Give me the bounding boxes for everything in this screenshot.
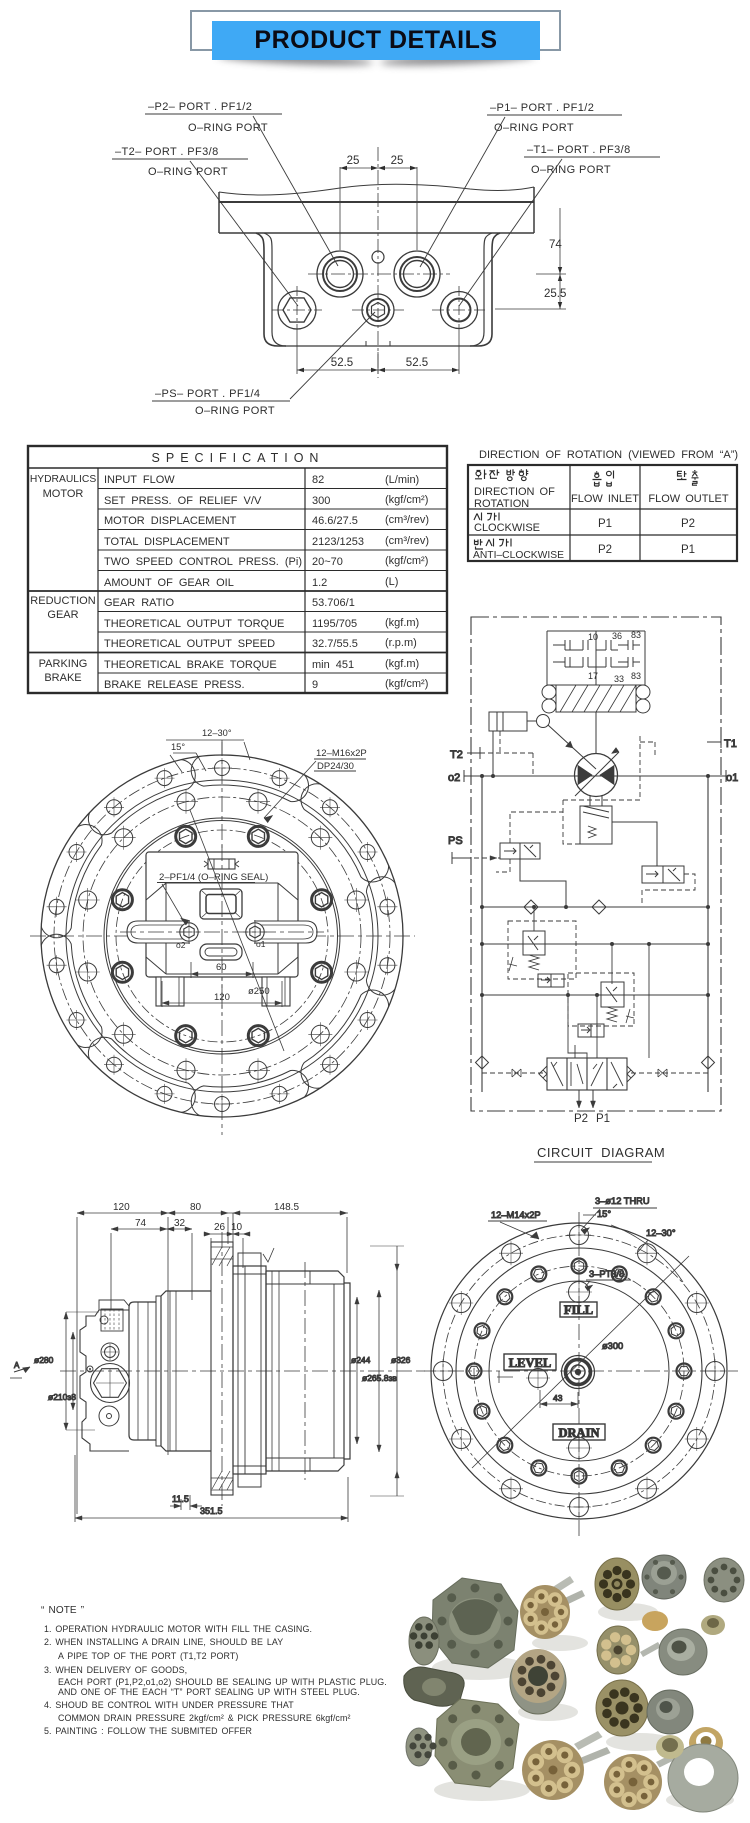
svg-text:FLOW INLET: FLOW INLET	[571, 493, 639, 505]
svg-text:1195/705: 1195/705	[312, 618, 357, 630]
svg-text:ANTI–CLOCKWISE: ANTI–CLOCKWISE	[473, 550, 564, 561]
svg-text:ø244: ø244	[351, 1355, 371, 1365]
svg-text:“ NOTE ”: “ NOTE ”	[41, 1605, 84, 1616]
svg-text:351.5: 351.5	[200, 1506, 223, 1516]
svg-text:P2: P2	[574, 1113, 588, 1125]
svg-text:74: 74	[549, 239, 562, 251]
svg-text:1. OPERATION HYDRAULIC MOTO: 1. OPERATION HYDRAULIC MOTOR WITH FILL T…	[44, 1624, 312, 1634]
svg-text:TOTAL DISPLACEMENT: TOTAL DISPLACEMENT	[104, 536, 230, 548]
svg-text:25: 25	[347, 155, 360, 167]
svg-text:148.5: 148.5	[274, 1202, 299, 1213]
svg-text:32: 32	[174, 1218, 186, 1229]
svg-text:83: 83	[631, 671, 641, 681]
svg-text:AMOUNT OF GEAR OIL: AMOUNT OF GEAR OIL	[104, 577, 234, 589]
svg-text:O–RING PORT: O–RING PORT	[195, 405, 275, 417]
svg-text:(kgf.m): (kgf.m)	[385, 617, 419, 629]
svg-text:P1: P1	[596, 1113, 610, 1125]
svg-text:(L/min): (L/min)	[385, 474, 419, 486]
svg-text:2123/1253: 2123/1253	[312, 536, 364, 548]
svg-text:THEORETICAL BRAKE TORQUE: THEORETICAL BRAKE TORQUE	[104, 659, 277, 671]
svg-text:P1: P1	[681, 544, 695, 556]
svg-text:(kgf/cm²): (kgf/cm²)	[385, 555, 428, 567]
svg-text:5. PAINTING : FOLLOW THE: 5. PAINTING : FOLLOW THE SUBMITED OFFER	[44, 1726, 252, 1736]
svg-text:82: 82	[312, 474, 324, 486]
svg-text:53.706/1: 53.706/1	[312, 597, 355, 609]
svg-text:(kgf.m): (kgf.m)	[385, 658, 419, 670]
svg-text:12–M16x2P: 12–M16x2P	[316, 748, 367, 759]
svg-text:3. WHEN DELIVERY OF GOODS,: 3. WHEN DELIVERY OF GOODS,	[44, 1665, 187, 1675]
svg-text:2. WHEN INSTALLING A DRAIN: 2. WHEN INSTALLING A DRAIN LINE, SHOULD …	[44, 1637, 283, 1647]
svg-text:20~70: 20~70	[312, 556, 343, 568]
svg-text:TWO SPEED CONTROL PRESS. (Pi): TWO SPEED CONTROL PRESS. (Pi)	[104, 556, 302, 568]
svg-text:o2: o2	[176, 940, 186, 950]
svg-text:LEVEL: LEVEL	[509, 1356, 551, 1370]
svg-text:ø210з8: ø210з8	[48, 1392, 76, 1402]
svg-text:ø280: ø280	[34, 1355, 54, 1365]
svg-text:THEORETICAL OUTPUT TORQUE: THEORETICAL OUTPUT TORQUE	[104, 618, 284, 630]
svg-text:o2: o2	[448, 772, 460, 784]
svg-text:EACH PORT (P1,P2,o1,o2) SHO: EACH PORT (P1,P2,o1,o2) SHOULD BE SEALIN…	[58, 1677, 387, 1687]
svg-text:46.6/27.5: 46.6/27.5	[312, 515, 358, 527]
svg-text:(cm³/rev): (cm³/rev)	[385, 535, 429, 547]
svg-text:17: 17	[588, 671, 598, 681]
svg-text:11.5: 11.5	[172, 1494, 189, 1504]
svg-text:BRAKE RELEASE PRESS.: BRAKE RELEASE PRESS.	[104, 679, 245, 691]
svg-text:MOTOR: MOTOR	[43, 488, 84, 500]
svg-text:(kgf/cm²): (kgf/cm²)	[385, 494, 428, 506]
svg-text:25: 25	[391, 155, 404, 167]
svg-text:A PIPE TOP OF THE PORT (: A PIPE TOP OF THE PORT (T1,T2 PORT)	[58, 1651, 238, 1661]
svg-text:T2: T2	[450, 749, 463, 761]
svg-text:ø250: ø250	[248, 986, 270, 997]
svg-text:INPUT FLOW: INPUT FLOW	[104, 474, 175, 486]
svg-text:12–30°: 12–30°	[202, 728, 232, 738]
svg-text:ø326: ø326	[391, 1355, 411, 1365]
svg-text:(r.p.m): (r.p.m)	[385, 637, 417, 649]
svg-text:80: 80	[190, 1202, 202, 1213]
svg-text:DIRECTION OF ROTATION (VIEWED: DIRECTION OF ROTATION (VIEWED FROM “A”)	[479, 449, 738, 461]
svg-text:12–M14x2P: 12–M14x2P	[491, 1210, 541, 1220]
svg-text:CIRCUIT DIAGRAM: CIRCUIT DIAGRAM	[537, 1145, 665, 1160]
svg-text:AND ONE OF THE EACH “T”: AND ONE OF THE EACH “T” PORT SEALING UP …	[58, 1687, 360, 1697]
svg-text:FILL: FILL	[564, 1303, 593, 1317]
svg-text:52.5: 52.5	[331, 357, 353, 369]
svg-text:o1: o1	[726, 772, 738, 784]
svg-text:32.7/55.5: 32.7/55.5	[312, 638, 358, 650]
svg-text:CLOCKWISE: CLOCKWISE	[474, 522, 540, 534]
svg-text:(L): (L)	[385, 576, 398, 588]
svg-text:52.5: 52.5	[406, 357, 428, 369]
svg-text:12–30°: 12–30°	[646, 1228, 676, 1238]
svg-text:MOTOR DISPLACEMENT: MOTOR DISPLACEMENT	[104, 515, 237, 527]
svg-text:10: 10	[231, 1222, 243, 1233]
svg-text:–T1– PORT . PF3/8: –T1– PORT . PF3/8	[527, 144, 631, 156]
svg-text:60: 60	[216, 962, 227, 973]
svg-text:REDUCTION: REDUCTION	[30, 595, 95, 607]
svg-text:O–RING PORT: O–RING PORT	[494, 122, 574, 134]
svg-text:33: 33	[614, 674, 624, 684]
svg-text:–P1– PORT . PF1/2: –P1– PORT . PF1/2	[490, 102, 594, 114]
svg-text:min 451: min 451	[312, 659, 354, 671]
svg-text:FLOW OUTLET: FLOW OUTLET	[648, 493, 729, 505]
svg-text:GEAR: GEAR	[47, 609, 78, 621]
svg-text:BRAKE: BRAKE	[44, 672, 81, 684]
svg-text:COMMON DRAIN PRESSURE 2kgf/: COMMON DRAIN PRESSURE 2kgf/cm² & PICK PR…	[58, 1713, 351, 1723]
svg-text:P2: P2	[598, 544, 612, 556]
svg-text:2–PF1/4 (O–RING SEAL): 2–PF1/4 (O–RING SEAL)	[159, 872, 268, 883]
svg-text:DP24/30: DP24/30	[317, 761, 354, 772]
svg-text:SET PRESS. OF RELIEF V/V: SET PRESS. OF RELIEF V/V	[104, 495, 262, 507]
svg-text:43: 43	[553, 1393, 563, 1403]
svg-text:9: 9	[312, 679, 318, 691]
svg-text:120: 120	[113, 1202, 130, 1213]
svg-text:T1: T1	[724, 738, 737, 750]
svg-text:HYDRAULICS: HYDRAULICS	[30, 474, 97, 485]
svg-text:10: 10	[588, 632, 598, 642]
svg-text:PARKING: PARKING	[39, 658, 88, 670]
svg-text:3–ø12 THRU: 3–ø12 THRU	[595, 1196, 650, 1206]
svg-text:O–RING PORT: O–RING PORT	[148, 166, 228, 178]
svg-text:(cm³/rev): (cm³/rev)	[385, 514, 429, 526]
svg-text:SPECIFICATION: SPECIFICATION	[152, 451, 325, 465]
svg-text:P1: P1	[598, 518, 612, 530]
svg-text:–T2– PORT . PF3/8: –T2– PORT . PF3/8	[115, 146, 219, 158]
svg-text:O–RING PORT: O–RING PORT	[188, 122, 268, 134]
svg-text:4. SHOUD BE CONTROL WITH: 4. SHOUD BE CONTROL WITH UNDER PRESSURE …	[44, 1700, 294, 1710]
svg-text:1.2: 1.2	[312, 577, 327, 589]
svg-text:74: 74	[135, 1218, 147, 1229]
svg-text:P2: P2	[681, 518, 695, 530]
svg-text:15°: 15°	[597, 1209, 611, 1219]
svg-text:–P2– PORT . PF1/2: –P2– PORT . PF1/2	[148, 101, 252, 113]
svg-text:–PS– PORT . PF1/4: –PS– PORT . PF1/4	[155, 388, 260, 400]
svg-text:3–PT3/8: 3–PT3/8	[589, 1269, 624, 1279]
svg-text:THEORETICAL OUTPUT SPEED: THEORETICAL OUTPUT SPEED	[104, 638, 275, 650]
svg-text:O–RING PORT: O–RING PORT	[531, 164, 611, 176]
svg-text:(kgf/cm²): (kgf/cm²)	[385, 678, 428, 690]
svg-text:ø265.8зв: ø265.8зв	[362, 1373, 397, 1383]
svg-text:15°: 15°	[171, 742, 185, 752]
svg-text:o1: o1	[256, 939, 266, 949]
svg-text:83: 83	[631, 630, 641, 640]
svg-text:300: 300	[312, 495, 330, 507]
svg-text:A: A	[14, 1361, 20, 1370]
svg-text:ø300: ø300	[602, 1341, 623, 1351]
svg-text:PS: PS	[448, 835, 463, 847]
svg-text:26: 26	[214, 1222, 226, 1233]
svg-text:DIRECTION OF: DIRECTION OF	[474, 486, 555, 498]
svg-text:GEAR RATIO: GEAR RATIO	[104, 597, 174, 609]
svg-text:25.5: 25.5	[544, 288, 566, 300]
svg-text:ROTATION: ROTATION	[474, 498, 529, 510]
svg-text:36: 36	[612, 631, 622, 641]
